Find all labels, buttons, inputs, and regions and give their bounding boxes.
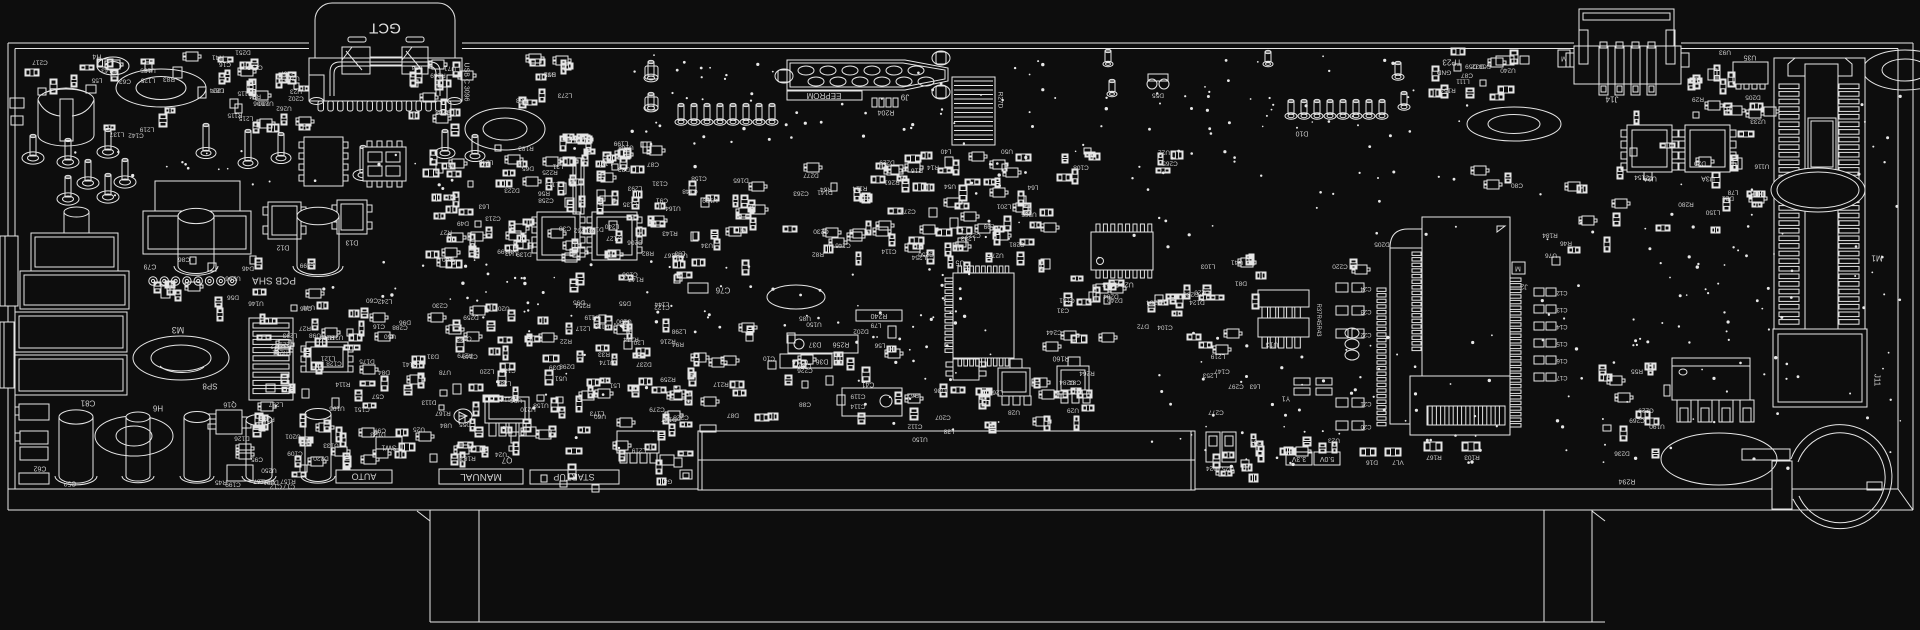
- svg-text:Q16: Q16: [223, 401, 236, 408]
- svg-text:C109: C109: [287, 450, 303, 457]
- svg-text:C88: C88: [799, 401, 811, 408]
- svg-text:C181: C181: [1059, 297, 1075, 304]
- svg-text:C14: C14: [1556, 323, 1568, 329]
- svg-text:L78: L78: [1727, 189, 1738, 196]
- svg-text:J11: J11: [1873, 374, 1882, 387]
- svg-text:D277: D277: [803, 172, 819, 179]
- svg-text:R143: R143: [662, 230, 678, 237]
- svg-text:R82: R82: [812, 251, 824, 258]
- svg-text:R37R45R43: R37R45R43: [1315, 303, 1321, 337]
- svg-text:L167: L167: [597, 160, 612, 167]
- svg-text:D46: D46: [242, 265, 254, 272]
- svg-text:U146: U146: [248, 300, 264, 307]
- svg-text:C263: C263: [793, 190, 809, 197]
- svg-text:C154: C154: [1634, 174, 1650, 181]
- svg-text:C13: C13: [1556, 306, 1568, 312]
- svg-text:C249: C249: [462, 353, 478, 360]
- svg-text:U284: U284: [1146, 299, 1162, 306]
- svg-text:C220: C220: [1332, 263, 1348, 270]
- svg-text:U262: U262: [276, 105, 292, 112]
- svg-text:H4: H4: [92, 53, 101, 60]
- svg-text:R27: R27: [299, 325, 311, 332]
- svg-text:L56: L56: [874, 342, 885, 349]
- svg-text:L219: L219: [139, 126, 154, 133]
- svg-text:C275: C275: [900, 208, 916, 215]
- svg-text:L199: L199: [613, 140, 628, 147]
- svg-text:C87: C87: [1461, 72, 1473, 79]
- svg-text:R22: R22: [560, 338, 572, 345]
- svg-text:C80: C80: [1511, 182, 1523, 189]
- svg-text:C38: C38: [559, 225, 571, 232]
- svg-text:U35: U35: [1743, 54, 1756, 61]
- svg-text:C20: C20: [1360, 423, 1372, 429]
- svg-text:U24: U24: [495, 451, 507, 458]
- svg-text:U85: U85: [799, 315, 811, 322]
- svg-text:C84: C84: [1069, 379, 1081, 386]
- svg-text:R167: R167: [1426, 454, 1442, 461]
- svg-text:R154: R154: [1440, 87, 1456, 94]
- svg-text:R56: R56: [538, 190, 550, 197]
- svg-text:D72: D72: [1137, 323, 1149, 330]
- svg-text:R256: R256: [833, 341, 850, 348]
- svg-text:D39: D39: [549, 364, 561, 371]
- svg-text:C91: C91: [656, 197, 668, 204]
- svg-text:U190: U190: [616, 318, 632, 325]
- svg-text:R33: R33: [598, 351, 610, 358]
- svg-text:J2: J2: [1520, 283, 1528, 290]
- svg-text:C60: C60: [366, 297, 378, 304]
- svg-text:C104: C104: [1157, 324, 1173, 331]
- svg-text:R83: R83: [163, 76, 175, 83]
- svg-text:D223: D223: [504, 187, 520, 194]
- svg-text:R160: R160: [1053, 355, 1070, 362]
- svg-text:L40: L40: [940, 148, 951, 155]
- svg-text:D165: D165: [733, 177, 749, 184]
- svg-text:R294: R294: [1619, 478, 1636, 485]
- svg-text:D12: D12: [276, 244, 289, 251]
- svg-text:L144: L144: [654, 301, 669, 308]
- svg-text:C128: C128: [326, 360, 342, 367]
- svg-text:C17: C17: [1556, 374, 1568, 380]
- svg-text:J9: J9: [900, 93, 909, 102]
- svg-text:C16: C16: [373, 323, 385, 330]
- svg-text:L219: L219: [1210, 353, 1225, 360]
- svg-text:D16: D16: [1366, 459, 1378, 466]
- svg-text:C148: C148: [456, 335, 472, 342]
- svg-text:C31: C31: [1057, 307, 1069, 314]
- svg-text:C22: C22: [1360, 331, 1372, 337]
- svg-text:C226: C226: [797, 367, 813, 374]
- svg-text:C10: C10: [763, 355, 775, 362]
- svg-text:R254: R254: [575, 302, 591, 309]
- svg-text:D175: D175: [359, 358, 375, 365]
- svg-text:L99: L99: [983, 223, 994, 230]
- svg-text:R46: R46: [1560, 240, 1572, 247]
- svg-text:C81: C81: [80, 399, 95, 408]
- svg-text:R167: R167: [435, 410, 451, 417]
- svg-text:C265: C265: [1162, 160, 1178, 167]
- svg-text:D32: D32: [1472, 63, 1484, 70]
- svg-text:U13: U13: [1265, 341, 1278, 348]
- svg-text:U34: U34: [701, 242, 713, 249]
- svg-text:D87: D87: [212, 87, 224, 94]
- svg-text:D183: D183: [588, 226, 604, 233]
- svg-text:C258: C258: [538, 197, 554, 204]
- svg-text:C281: C281: [1009, 241, 1025, 248]
- svg-text:AUTO: AUTO: [352, 472, 377, 482]
- svg-text:L137: L137: [109, 131, 124, 138]
- svg-text:C213: C213: [485, 215, 501, 222]
- svg-text:U267: U267: [284, 75, 300, 82]
- svg-text:D237: D237: [636, 361, 652, 368]
- svg-text:M: M: [1515, 265, 1521, 272]
- svg-text:L219: L219: [631, 447, 646, 454]
- svg-text:C15: C15: [1556, 340, 1568, 346]
- svg-text:R55: R55: [1631, 368, 1643, 375]
- svg-text:U22: U22: [1158, 149, 1170, 156]
- svg-text:L63: L63: [478, 203, 489, 210]
- svg-text:R204: R204: [878, 109, 895, 116]
- svg-text:L273: L273: [557, 92, 572, 99]
- svg-text:R183: R183: [518, 145, 534, 152]
- svg-text:C16: C16: [219, 61, 231, 68]
- svg-text:D229: D229: [879, 159, 895, 166]
- svg-text:L299: L299: [299, 262, 314, 269]
- svg-text:U98: U98: [309, 332, 321, 339]
- svg-text:D36: D36: [815, 358, 828, 365]
- svg-text:R264: R264: [1079, 370, 1095, 377]
- svg-text:C288: C288: [392, 324, 408, 331]
- svg-text:R94: R94: [672, 341, 684, 348]
- svg-text:J14: J14: [1605, 95, 1618, 104]
- svg-text:U116: U116: [1754, 163, 1769, 170]
- svg-text:C63: C63: [119, 78, 131, 85]
- svg-text:D113: D113: [421, 399, 436, 406]
- svg-text:U78: U78: [439, 369, 451, 376]
- svg-text:U54: U54: [944, 183, 956, 190]
- svg-text:R114: R114: [335, 381, 350, 388]
- svg-text:L242: L242: [377, 298, 392, 305]
- svg-text:C114: C114: [881, 248, 896, 255]
- svg-text:U265: U265: [1021, 211, 1037, 218]
- svg-text:H6: H6: [152, 404, 163, 413]
- svg-text:C230: C230: [432, 302, 448, 309]
- svg-text:D259: D259: [463, 314, 479, 321]
- svg-text:R183: R183: [460, 455, 476, 462]
- svg-text:D87: D87: [727, 412, 739, 419]
- svg-text:GCT: GCT: [369, 20, 401, 37]
- svg-text:L125: L125: [140, 77, 155, 84]
- svg-text:D55: D55: [459, 421, 471, 428]
- svg-text:U133: U133: [323, 442, 339, 449]
- svg-text:D205: D205: [1745, 94, 1761, 101]
- svg-text:U233: U233: [1750, 118, 1766, 125]
- svg-text:U164: U164: [665, 205, 681, 212]
- svg-text:R280: R280: [1678, 201, 1694, 208]
- svg-text:D126: D126: [234, 435, 250, 442]
- svg-text:R82: R82: [642, 250, 654, 257]
- svg-text:R41: R41: [212, 54, 224, 61]
- svg-text:M1: M1: [1871, 254, 1883, 263]
- svg-text:C24: C24: [1360, 285, 1372, 291]
- svg-text:U150: U150: [912, 436, 928, 443]
- svg-text:C228: C228: [673, 414, 689, 421]
- svg-text:C108: C108: [1073, 164, 1089, 171]
- svg-text:EEPROM: EEPROM: [806, 91, 841, 100]
- svg-text:D37: D37: [808, 341, 821, 348]
- svg-text:U296: U296: [225, 275, 241, 282]
- svg-text:L41: L41: [618, 274, 629, 281]
- svg-text:D37: D37: [1250, 439, 1262, 446]
- svg-text:L114: L114: [545, 181, 559, 188]
- svg-text:L220: L220: [479, 368, 494, 375]
- svg-text:U190: U190: [1649, 423, 1665, 430]
- svg-text:M: M: [1561, 55, 1567, 62]
- svg-text:C244: C244: [1046, 329, 1062, 336]
- svg-text:C119: C119: [850, 393, 865, 400]
- svg-text:R45: R45: [215, 479, 227, 486]
- svg-text:R184: R184: [1542, 232, 1558, 239]
- svg-text:C17: C17: [283, 483, 295, 490]
- svg-text:D10: D10: [1295, 130, 1308, 137]
- svg-text:C207: C207: [935, 414, 951, 421]
- svg-text:D202: D202: [853, 328, 869, 335]
- svg-text:C151: C151: [354, 406, 370, 413]
- svg-text:C206: C206: [627, 239, 643, 246]
- svg-text:L254: L254: [911, 254, 926, 261]
- svg-text:U50: U50: [1001, 148, 1013, 155]
- svg-text:U25: U25: [413, 426, 425, 433]
- svg-text:C12: C12: [1556, 289, 1568, 295]
- svg-text:D56: D56: [227, 294, 239, 301]
- svg-text:C79: C79: [143, 263, 156, 270]
- svg-text:D49: D49: [457, 220, 469, 227]
- svg-text:C76: C76: [715, 286, 730, 295]
- svg-text:R217: R217: [713, 381, 729, 388]
- svg-text:5.0V: 5.0V: [1319, 455, 1334, 462]
- svg-text:L63: L63: [1249, 383, 1260, 390]
- svg-text:C114: C114: [850, 403, 865, 410]
- svg-text:SP8: SP8: [202, 382, 218, 391]
- svg-text:C131: C131: [652, 180, 668, 187]
- svg-text:D205: D205: [1374, 241, 1390, 248]
- svg-text:C52: C52: [63, 480, 76, 487]
- svg-text:U127: U127: [606, 235, 622, 242]
- svg-text:USB C 3096: USB C 3096: [463, 63, 470, 102]
- svg-text:U29: U29: [1067, 407, 1079, 414]
- svg-text:L298: L298: [671, 328, 686, 335]
- svg-text:R103: R103: [1464, 454, 1480, 461]
- svg-text:D236: D236: [1614, 450, 1630, 457]
- svg-text:C158: C158: [691, 175, 707, 182]
- svg-text:U93: U93: [1719, 49, 1731, 56]
- svg-text:R55: R55: [544, 71, 556, 78]
- svg-text:C95: C95: [251, 456, 263, 463]
- svg-text:L64: L64: [1027, 184, 1038, 191]
- svg-text:VL7: VL7: [1392, 459, 1404, 466]
- svg-text:U84: U84: [440, 422, 452, 429]
- svg-text:L261: L261: [988, 389, 1003, 396]
- svg-text:C16: C16: [1556, 357, 1568, 363]
- svg-text:L103: L103: [1200, 263, 1215, 270]
- svg-text:R64: R64: [820, 186, 832, 193]
- svg-text:MANUAL: MANUAL: [460, 471, 502, 482]
- svg-text:M3: M3: [172, 325, 185, 335]
- svg-text:U51: U51: [555, 375, 567, 382]
- svg-text:L201: L201: [996, 203, 1011, 210]
- svg-text:C146: C146: [835, 242, 851, 249]
- svg-text:C277: C277: [1208, 409, 1224, 416]
- svg-text:U150: U150: [806, 321, 822, 328]
- svg-text:D284: D284: [1103, 293, 1119, 300]
- svg-text:C279: C279: [649, 406, 665, 413]
- svg-text:L150: L150: [1705, 209, 1720, 216]
- svg-text:C23: C23: [1360, 308, 1372, 314]
- svg-text:TP23: TP23: [1442, 58, 1462, 67]
- svg-text:U250: U250: [261, 467, 277, 474]
- svg-text:L55: L55: [91, 77, 102, 84]
- svg-text:R259: R259: [660, 376, 676, 383]
- svg-text:U122: U122: [270, 343, 286, 350]
- svg-text:C62: C62: [33, 465, 46, 472]
- svg-text:R214: R214: [623, 336, 639, 343]
- svg-text:C217: C217: [32, 59, 48, 66]
- svg-text:D55: D55: [619, 300, 631, 307]
- svg-text:C21: C21: [1360, 400, 1372, 406]
- svg-text:U135: U135: [140, 67, 156, 74]
- svg-text:D251: D251: [235, 49, 251, 56]
- svg-text:C57: C57: [372, 393, 384, 400]
- svg-text:U240: U240: [1500, 67, 1516, 74]
- svg-text:D84: D84: [378, 369, 390, 376]
- svg-text:C87: C87: [647, 161, 659, 168]
- svg-text:R14: R14: [927, 164, 939, 171]
- svg-text:U201: U201: [285, 433, 301, 440]
- svg-text:U56: U56: [510, 397, 522, 404]
- svg-text:C66: C66: [300, 305, 312, 312]
- svg-text:U207: U207: [494, 305, 510, 312]
- svg-text:L293: L293: [627, 185, 642, 192]
- svg-text:D31: D31: [427, 353, 439, 360]
- svg-text:U195: U195: [329, 405, 345, 412]
- svg-text:C202: C202: [288, 95, 304, 102]
- svg-text:L79: L79: [870, 322, 881, 329]
- svg-text:U60: U60: [594, 413, 606, 420]
- svg-text:U210: U210: [258, 100, 274, 107]
- svg-text:U5: U5: [955, 259, 964, 266]
- svg-text:D298: D298: [559, 363, 575, 370]
- svg-text:C297: C297: [1228, 383, 1244, 390]
- svg-text:C230: C230: [813, 228, 829, 235]
- svg-text:U28: U28: [1008, 409, 1020, 416]
- svg-text:C97: C97: [374, 427, 386, 434]
- svg-text:C12: C12: [270, 483, 282, 490]
- svg-text:R29: R29: [1692, 96, 1704, 103]
- svg-text:L257: L257: [268, 401, 283, 408]
- svg-text:Y1: Y1: [1282, 395, 1291, 402]
- svg-text:D81: D81: [1235, 280, 1247, 287]
- svg-text:D13: D13: [345, 239, 358, 246]
- svg-text:L51: L51: [609, 382, 620, 389]
- svg-text:L217: L217: [575, 325, 590, 332]
- svg-text:C112: C112: [907, 423, 922, 430]
- svg-text:U23: U23: [290, 88, 302, 95]
- svg-text:PCB SHA: PCB SHA: [252, 275, 296, 286]
- svg-text:C147: C147: [1214, 368, 1230, 375]
- svg-text:D139: D139: [516, 251, 532, 258]
- svg-text:R225: R225: [542, 169, 558, 176]
- svg-text:L293: L293: [282, 332, 297, 339]
- svg-text:C86: C86: [178, 256, 190, 263]
- svg-text:R62: R62: [907, 392, 919, 399]
